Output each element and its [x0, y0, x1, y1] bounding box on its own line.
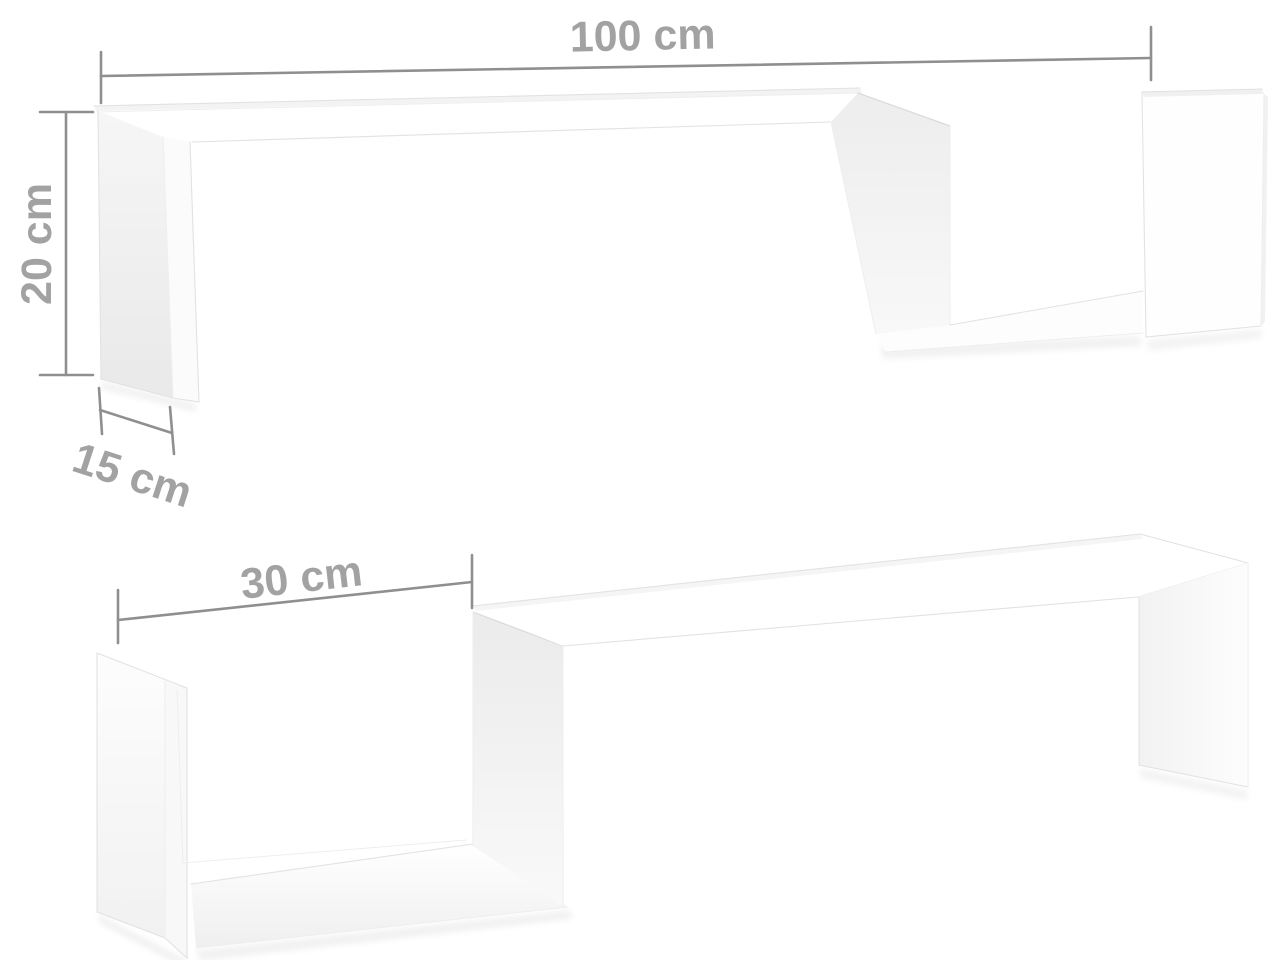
opening-dimension-label: 30 cm: [238, 547, 365, 608]
dimension-opening-30cm: 30 cm: [118, 547, 472, 643]
top-shelf-right-panel: [1144, 94, 1264, 337]
length-dimension-label: 100 cm: [569, 10, 716, 61]
dimension-height-20cm: 20 cm: [13, 112, 93, 375]
bottom-shelf-left-panel-front-edge: [165, 681, 187, 958]
product-dimension-image: 100 cm 20 cm 15 cm 30 cm: [0, 0, 1280, 960]
bottom-shelf-left-panel-side-face: [97, 653, 165, 938]
top-shelf-left-panel-side-face: [98, 111, 173, 398]
length-dimension-line: [101, 58, 1151, 76]
depth-dimension-label: 15 cm: [67, 434, 198, 517]
bottom-shelf-right-panel: [1139, 563, 1248, 787]
dimension-length-100cm: 100 cm: [101, 10, 1151, 103]
height-dimension-label: 20 cm: [13, 183, 61, 305]
depth-left-tick: [99, 388, 102, 434]
dimension-diagram: 100 cm 20 cm 15 cm 30 cm: [0, 0, 1280, 960]
depth-dimension-line: [100, 410, 172, 433]
depth-right-tick: [170, 407, 174, 454]
bottom-shelf-long-board: [476, 539, 1248, 646]
top-shelf-render: [94, 88, 1268, 412]
top-shelf-inner-panel: [831, 93, 950, 334]
